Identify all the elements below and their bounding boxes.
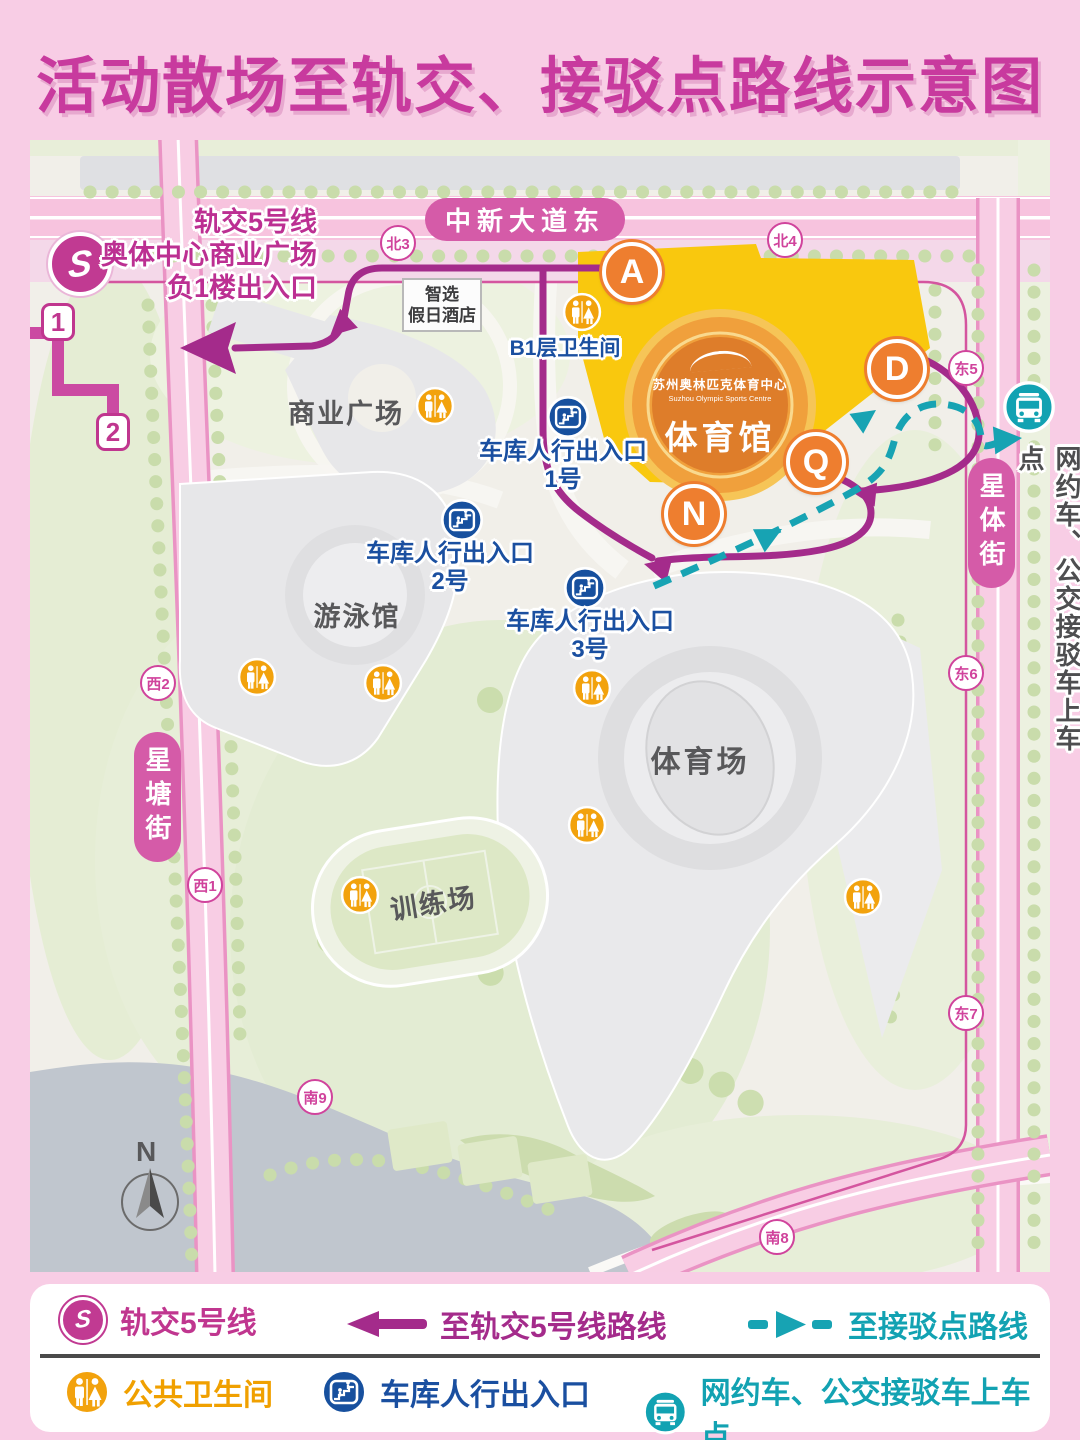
- pickup-point-label: 网约车、公交接驳车上车点: [1012, 445, 1080, 775]
- road-badge-south8: 南8: [759, 1219, 795, 1255]
- legend-item-toilet: 公共卫生间: [63, 1368, 273, 1416]
- poster: 活动散场至轨交、接驳点路线示意图: [0, 0, 1080, 1440]
- gate-marker-a: A: [602, 242, 662, 302]
- garage-exit-icon: [563, 566, 607, 610]
- pool-label: 游泳馆: [287, 595, 427, 634]
- legend-item-garage: 车库人行出入口: [320, 1368, 590, 1416]
- legend-item-route-to-rail: 至轨交5号线路线: [345, 1302, 667, 1346]
- metro-exit-1-badge: 1: [41, 303, 75, 341]
- garage-exit-1-label: 车库人行出入口 1号: [448, 438, 678, 495]
- road-badge-south9: 南9: [297, 1079, 333, 1115]
- b1-toilet-label: B1层卫生间: [495, 332, 635, 362]
- legend-divider: [40, 1354, 1040, 1358]
- toilet-icon: [572, 668, 612, 708]
- legend-item-rail-line: S 轨交5号线: [60, 1297, 257, 1343]
- garage-exit-icon: [320, 1368, 368, 1416]
- legend-panel: S 轨交5号线 至轨交5号线路线 至接驳点路线 公共卫生间 车库人行出入: [30, 1284, 1050, 1432]
- plaza-label: 商业广场: [280, 392, 412, 431]
- garage-exit-icon: [546, 395, 590, 439]
- toilet-icon: [363, 663, 403, 703]
- rail-route-arrow-icon: [345, 1308, 430, 1340]
- map-canvas: [30, 140, 1050, 1272]
- north-building-band: [80, 156, 960, 190]
- metro-entrance-info: 轨交5号线 奥体中心商业广场 负1楼出入口: [55, 206, 317, 305]
- sports-centre-logo-icon: [688, 348, 751, 372]
- metro-logo: S: [60, 1297, 106, 1343]
- street-label-xingtang-street: 星塘街: [134, 732, 181, 862]
- toilet-icon: [562, 292, 602, 332]
- road-badge-north3: 北3: [380, 225, 416, 261]
- stadium-label: 体育场: [620, 737, 780, 781]
- toilet-icon: [237, 657, 277, 697]
- toilet-icon: [63, 1368, 111, 1416]
- garage-exit-2-label: 车库人行出入口 2号: [335, 540, 565, 597]
- gym-label: 体育馆: [665, 411, 776, 459]
- legend-item-route-to-shuttle: 至接驳点路线: [748, 1302, 1028, 1346]
- toilet-icon: [415, 386, 455, 426]
- road-badge-west2: 西2: [140, 665, 176, 701]
- street-label-xingti-street: 星体街: [968, 458, 1015, 588]
- street-label-zhongxin-avenue-east: 中新大道东: [425, 198, 625, 241]
- toilet-icon: [843, 877, 883, 917]
- garage-exit-3-label: 车库人行出入口 3号: [475, 608, 705, 665]
- legend-item-pickup: 网约车、公交接驳车上车点: [642, 1368, 1050, 1440]
- shuttle-bus-icon: [642, 1388, 689, 1436]
- gate-marker-q: Q: [786, 432, 846, 492]
- road-badge-east7: 东7: [948, 995, 984, 1031]
- page-title: 活动散场至轨交、接驳点路线示意图: [0, 36, 1080, 125]
- shuttle-bus-icon: [1002, 380, 1056, 434]
- road-badge-west1: 西1: [187, 867, 223, 903]
- site-map: 中新大道东 星塘街 星体街 北3 北4 东5 东6 东7 西2 西1 南9 南8…: [30, 140, 1050, 1272]
- compass-north-label: N: [136, 1136, 156, 1168]
- metro-exit-2-badge: 2: [96, 413, 130, 451]
- gate-marker-d: D: [867, 339, 927, 399]
- toilet-icon: [567, 805, 607, 845]
- toilet-icon: [340, 875, 380, 915]
- road-badge-east5: 东5: [948, 350, 984, 386]
- shuttle-route-arrow-icon: [748, 1308, 840, 1340]
- hotel-box: 智选 假日酒店: [402, 278, 482, 332]
- garage-exit-icon: [440, 498, 484, 542]
- road-badge-north4: 北4: [767, 222, 803, 258]
- road-badge-east6: 东6: [948, 655, 984, 691]
